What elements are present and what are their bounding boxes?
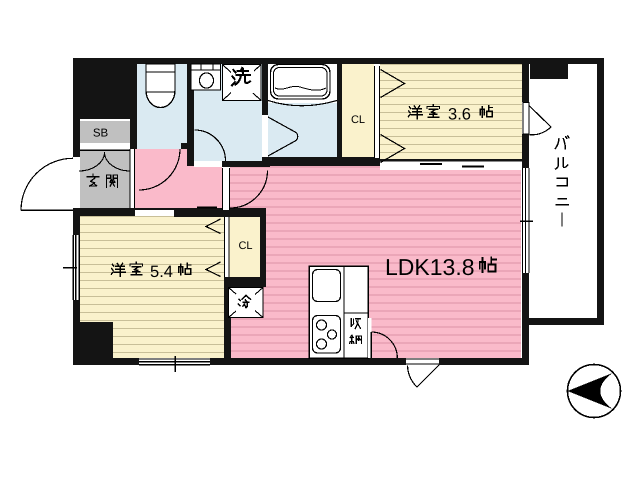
svg-text:5.4: 5.4	[150, 263, 173, 281]
svg-text:SB: SB	[93, 128, 109, 140]
svg-text:CL: CL	[351, 114, 365, 126]
svg-text:CL: CL	[238, 240, 252, 252]
svg-text:3.6: 3.6	[448, 106, 471, 124]
svg-text:LDK13.8: LDK13.8	[385, 254, 475, 280]
